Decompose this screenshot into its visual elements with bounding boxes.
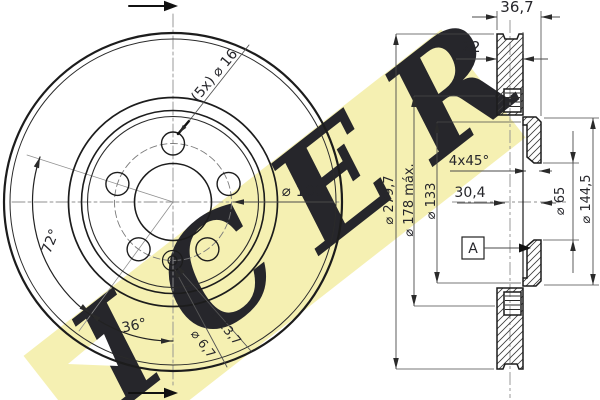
total-width-label: 36,7 bbox=[500, 0, 533, 16]
bolt-pattern-label: (5x) ⌀ 16 bbox=[188, 46, 241, 105]
hat-depth-label: 30,4 bbox=[454, 185, 485, 201]
pcd-label: ⌀ 100 bbox=[282, 182, 324, 200]
datum-a: A bbox=[462, 237, 531, 259]
drawing-canvas: ICER bbox=[0, 0, 600, 400]
datum-label: A bbox=[468, 241, 478, 257]
center-bore-label: ⌀ 65 bbox=[553, 187, 568, 216]
inner-diameter-label: ⌀ 133 bbox=[424, 183, 439, 220]
angle-72-label: 72° bbox=[39, 227, 63, 256]
max-diameter-label: ⌀ 178 máx. bbox=[402, 163, 417, 236]
brake-disc-technical-drawing: ICER bbox=[0, 0, 600, 400]
hat-diameter-label: ⌀ 144,5 bbox=[579, 174, 594, 223]
chamfer-label: 4x45° bbox=[449, 153, 490, 169]
hat-flange-upper bbox=[523, 117, 541, 163]
disc-thickness-label: 22 bbox=[461, 38, 480, 56]
outer-diameter-label: ⌀ 279,7 bbox=[382, 175, 397, 224]
